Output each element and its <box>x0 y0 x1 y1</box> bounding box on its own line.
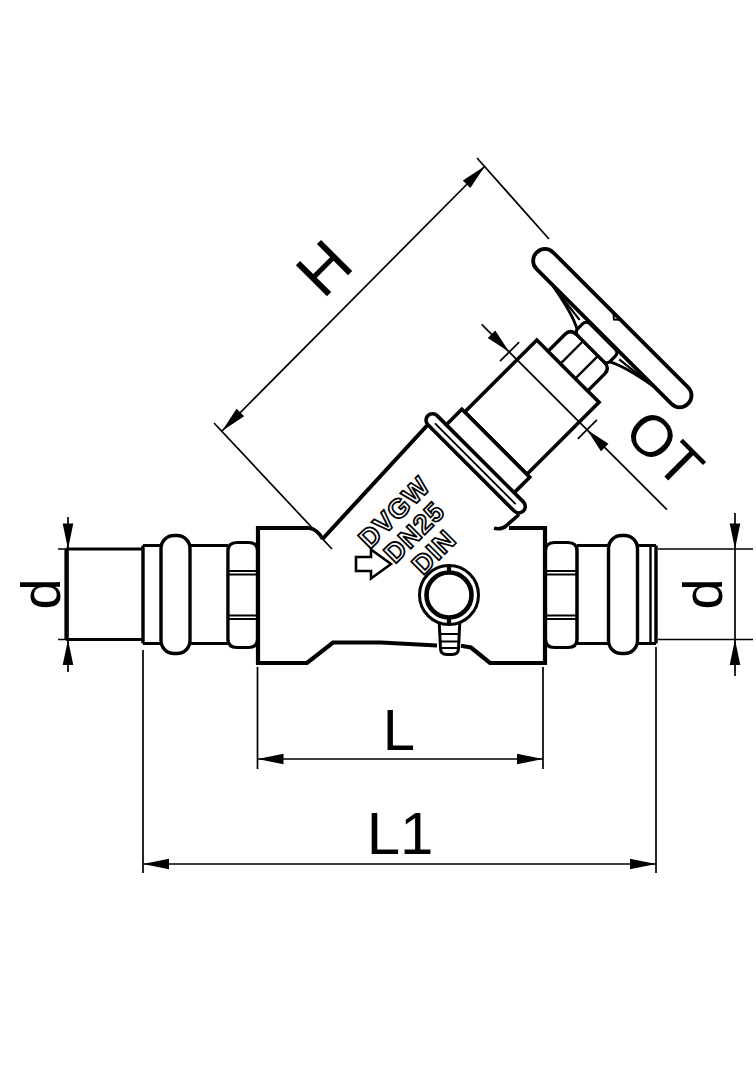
technical-drawing-page: DVGW DN25 DIN OT <box>0 0 756 1080</box>
valve-technical-drawing: DVGW DN25 DIN OT <box>0 0 756 1080</box>
hex-nut-right <box>546 543 578 648</box>
l-dimension-label: L <box>383 697 415 762</box>
d-left-dimension-label: d <box>9 578 72 609</box>
drain-boss-inner <box>427 573 472 618</box>
press-bead-right <box>609 536 638 654</box>
l1-dimension-label: L1 <box>367 800 434 867</box>
d-right-dimension-label: d <box>671 578 734 609</box>
press-bead-left <box>161 536 190 654</box>
hex-nut-left <box>228 543 258 648</box>
